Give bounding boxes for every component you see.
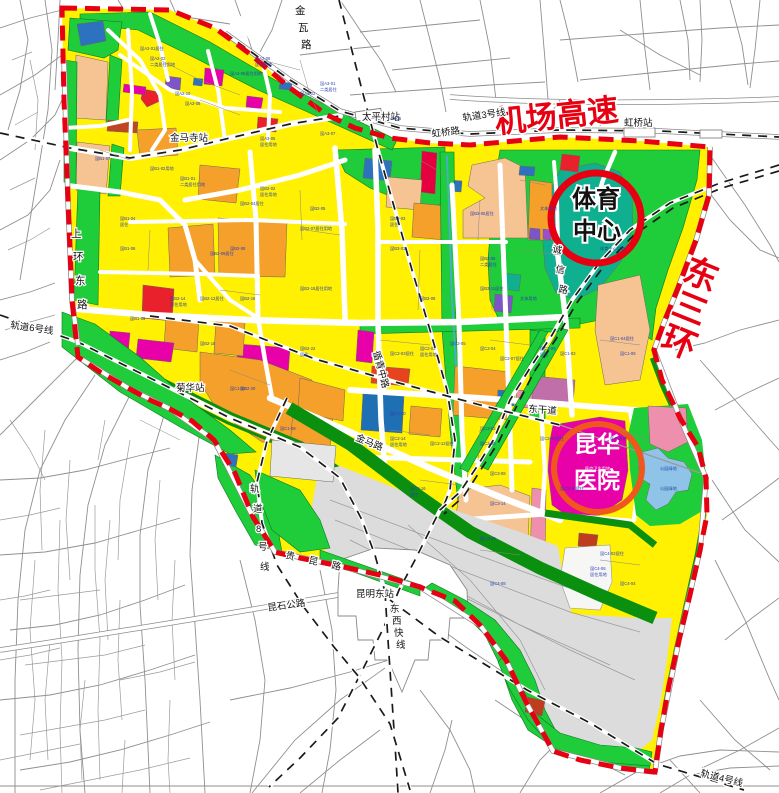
svg-text:路: 路 [301,38,312,51]
svg-text:昆C3-04居住: 昆C3-04居住 [540,435,565,442]
svg-text:昆华: 昆华 [574,431,620,457]
svg-text:昆B1-02用地: 昆B1-02用地 [150,165,175,172]
svg-text:环: 环 [73,251,84,263]
svg-text:居住: 居住 [410,491,419,498]
svg-text:昆C1-04居住: 昆C1-04居住 [610,335,635,342]
svg-text:居住: 居住 [390,221,399,228]
svg-text:路: 路 [77,298,88,311]
svg-text:昆B2-07居住用地: 昆B2-07居住用地 [300,225,333,232]
svg-text:居住用地: 居住用地 [590,571,608,578]
svg-text:8: 8 [256,524,261,535]
svg-text:中心: 中心 [573,218,621,245]
svg-text:昆B2-09居住: 昆B2-09居住 [210,250,235,257]
svg-text:虹桥站: 虹桥站 [624,117,653,129]
svg-text:号: 号 [258,542,268,553]
svg-text:线: 线 [396,639,406,651]
svg-text:昆B2-12居住: 昆B2-12居住 [200,295,225,302]
svg-text:二类居住用地: 二类居住用地 [180,181,206,188]
svg-text:居住用地: 居住用地 [260,191,278,198]
svg-text:二类居住: 二类居住 [320,86,338,93]
svg-text:轨: 轨 [250,483,260,495]
svg-text:上: 上 [71,228,82,240]
svg-text:二类居住: 二类居住 [480,261,498,268]
svg-text:居住用地: 居住用地 [260,141,278,148]
svg-text:二类居住用地: 二类居住用地 [150,61,176,68]
svg-text:昆A2-01居住: 昆A2-01居住 [140,45,165,52]
svg-text:昆C2-07居住: 昆C2-07居住 [500,355,525,362]
svg-text:居住: 居住 [300,351,309,358]
svg-text:居住用地: 居住用地 [420,351,438,358]
svg-text:医疗卫生用地: 医疗卫生用地 [585,465,611,472]
svg-text:居住: 居住 [120,221,129,228]
svg-text:居住用地: 居住用地 [255,61,273,68]
svg-text:昆B2-15居住用地: 昆B2-15居住用地 [300,285,333,292]
svg-text:公园绿地: 公园绿地 [660,485,678,492]
svg-text:居住用地: 居住用地 [390,441,408,448]
svg-text:西: 西 [392,616,402,627]
svg-text:昆C2-12居住: 昆C2-12居住 [430,440,455,447]
svg-text:体育中心用地: 体育中心用地 [600,245,626,252]
svg-text:金马寺站: 金马寺站 [170,132,209,144]
svg-text:医疗用地: 医疗用地 [610,435,628,442]
svg-text:瓦: 瓦 [298,22,309,34]
svg-text:昆C4-02居住: 昆C4-02居住 [600,550,625,557]
svg-text:线: 线 [260,561,270,573]
svg-text:昆C3-10居住: 昆C3-10居住 [560,485,585,492]
svg-text:东: 东 [390,603,400,615]
svg-text:菊华站: 菊华站 [176,382,205,394]
svg-text:昆B2-04居住: 昆B2-04居住 [240,200,265,207]
svg-text:体育: 体育 [572,185,620,213]
svg-text:昆B3-11居住: 昆B3-11居住 [480,285,504,292]
svg-text:居住用地: 居住用地 [170,301,188,308]
svg-text:金: 金 [295,4,306,17]
svg-text:东: 东 [75,274,86,287]
svg-text:文体用地: 文体用地 [540,205,558,212]
svg-text:昆A2-05居住用地: 昆A2-05居住用地 [230,70,263,77]
svg-text:居住: 居住 [540,351,549,358]
svg-text:快: 快 [394,627,404,639]
svg-text:公园绿地: 公园绿地 [660,465,678,472]
svg-text:昆明东站: 昆明东站 [356,588,395,600]
svg-text:A3-06: A3-06 [390,116,402,121]
svg-text:东干道: 东干道 [528,403,558,417]
svg-text:昆B3-05居住: 昆B3-05居住 [470,210,495,217]
svg-text:昆C2-03居住: 昆C2-03居住 [390,350,415,357]
svg-text:道: 道 [253,503,263,515]
svg-text:文体用地: 文体用地 [520,295,538,302]
